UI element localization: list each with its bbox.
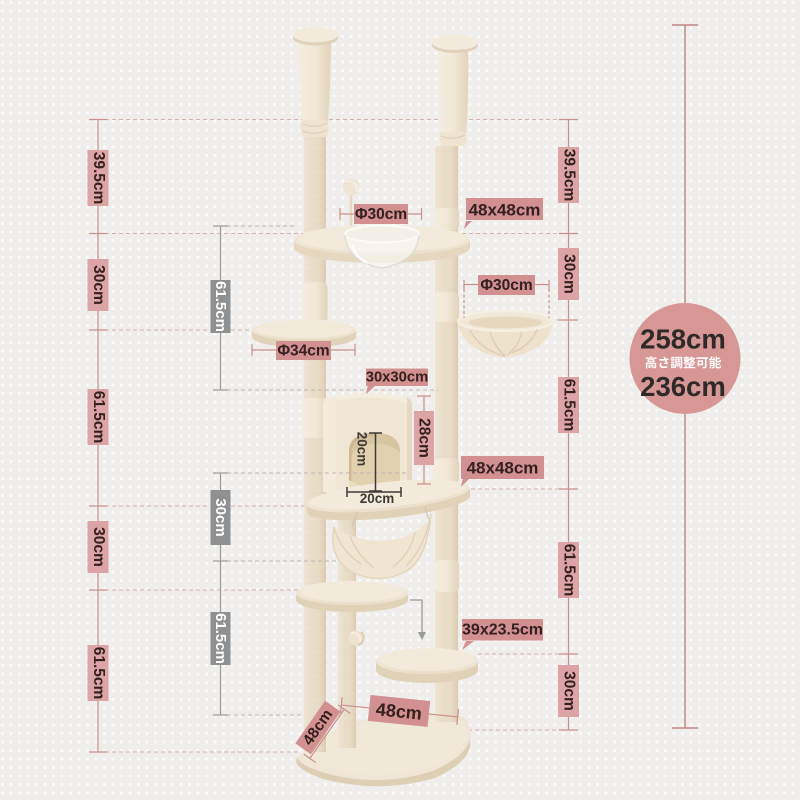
svg-text:258cm: 258cm: [640, 324, 726, 355]
svg-text:61.5cm: 61.5cm: [561, 544, 578, 597]
svg-text:61.5cm: 61.5cm: [90, 391, 107, 444]
svg-text:48x48cm: 48x48cm: [469, 201, 541, 220]
svg-text:39.5cm: 39.5cm: [561, 149, 578, 202]
svg-text:61.5cm: 61.5cm: [90, 647, 107, 700]
svg-text:30cm: 30cm: [90, 527, 107, 567]
svg-text:30cm: 30cm: [561, 671, 578, 711]
svg-text:39.5cm: 39.5cm: [90, 152, 107, 205]
svg-text:39x23.5cm: 39x23.5cm: [462, 622, 543, 639]
svg-text:Φ34cm: Φ34cm: [277, 343, 329, 360]
svg-text:48x48cm: 48x48cm: [467, 459, 539, 478]
svg-text:Φ30cm: Φ30cm: [480, 277, 532, 294]
svg-text:28cm: 28cm: [416, 418, 433, 458]
svg-text:61.5cm: 61.5cm: [561, 379, 578, 432]
svg-text:20cm: 20cm: [360, 491, 395, 506]
svg-text:30cm: 30cm: [90, 265, 107, 305]
svg-text:30x30cm: 30x30cm: [366, 370, 429, 386]
svg-text:30cm: 30cm: [212, 498, 229, 536]
svg-text:Φ30cm: Φ30cm: [355, 206, 407, 223]
svg-text:61.5cm: 61.5cm: [212, 613, 229, 664]
svg-text:20cm: 20cm: [355, 432, 370, 467]
svg-text:61.5cm: 61.5cm: [212, 281, 229, 332]
svg-text:236cm: 236cm: [640, 371, 726, 402]
svg-text:30cm: 30cm: [561, 254, 578, 294]
